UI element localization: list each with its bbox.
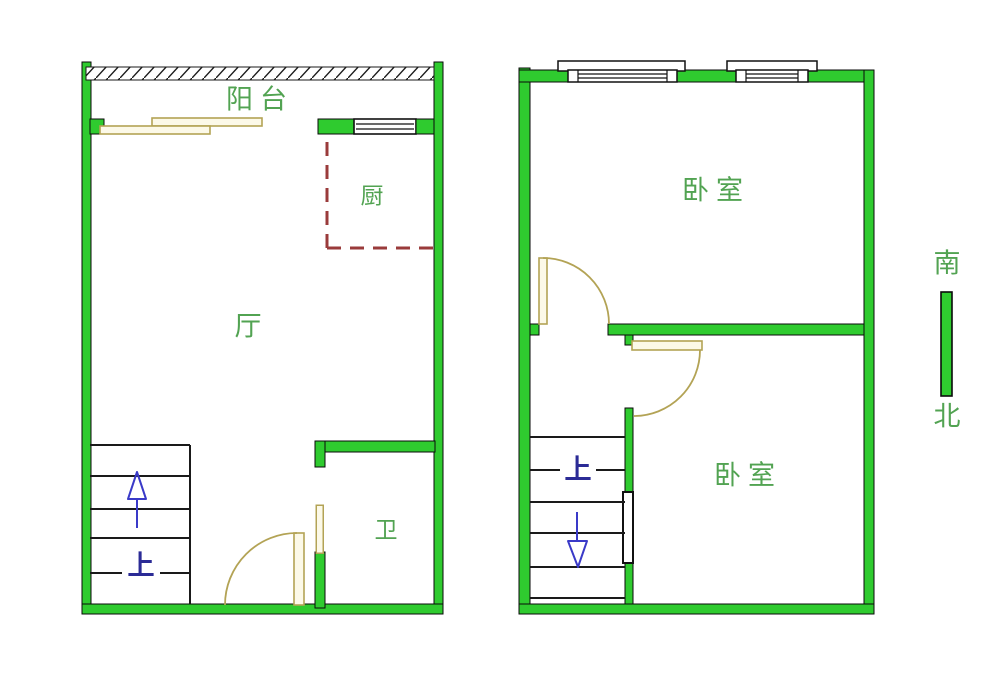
door-swing-arc xyxy=(634,350,700,416)
door-swing-arc xyxy=(225,533,297,605)
bedroom-top-label: 卧室 xyxy=(682,178,750,205)
window-frame xyxy=(354,119,416,134)
bath-sliding-panel xyxy=(316,505,323,553)
compass-bar xyxy=(941,292,952,396)
floor2-bottom-wall xyxy=(519,604,874,614)
floor2-plan xyxy=(519,61,874,614)
floor2-down-arrow xyxy=(568,512,587,567)
bath-top-wall-stub xyxy=(315,441,325,467)
floor1-stairs-up-label: 上 xyxy=(128,553,155,580)
wall-segment xyxy=(318,119,354,134)
floor2-window-left xyxy=(558,61,685,82)
balcony-sliding-door-leaf-upper xyxy=(152,118,262,126)
arrow-head xyxy=(568,541,587,567)
bedroom-bottom-label: 卧室 xyxy=(714,463,782,490)
floor2-right-wall xyxy=(864,70,874,614)
floor2-left-wall xyxy=(519,68,530,614)
wall-stub xyxy=(530,324,539,335)
bedroom1-door xyxy=(539,258,609,324)
bathroom-label: 卫 xyxy=(375,519,398,542)
kitchen-label: 厨 xyxy=(361,185,384,208)
bedroom-divider-wall xyxy=(530,324,864,335)
floor1-bottom-wall xyxy=(82,604,443,614)
door-swing-arc xyxy=(543,258,609,324)
bath-top-wall xyxy=(315,441,435,452)
balcony-label: 阳台 xyxy=(226,87,294,114)
living-room-label: 厅 xyxy=(235,314,262,341)
wall-segment xyxy=(608,324,864,335)
balcony-divider xyxy=(90,118,434,134)
window-frame xyxy=(568,70,677,82)
floor1-door xyxy=(225,533,304,605)
door-leaf xyxy=(294,533,304,605)
bedroom2-door xyxy=(625,335,702,416)
balcony-hatched-wall xyxy=(86,67,434,80)
compass-south-label: 南 xyxy=(934,251,961,278)
compass-north-label: 北 xyxy=(934,404,961,431)
floor2-stairs-up-label: 上 xyxy=(565,457,592,484)
door-leaf xyxy=(539,258,547,324)
compass xyxy=(941,292,952,396)
floor1-left-wall xyxy=(82,62,91,614)
floorplan-canvas: 阳台 厅 厨 卫 上 卧室 卧室 上 南 北 xyxy=(0,0,1000,676)
floor2-window-right xyxy=(727,61,817,82)
bath-left-wall xyxy=(315,552,325,608)
door-leaf xyxy=(632,341,702,350)
wall-segment xyxy=(416,119,434,134)
balcony-window xyxy=(354,119,416,134)
balcony-sliding-door-leaf-lower xyxy=(100,126,210,134)
floor1-up-arrow xyxy=(128,472,146,528)
window-frame xyxy=(736,70,808,82)
floor1-right-wall xyxy=(434,62,443,614)
